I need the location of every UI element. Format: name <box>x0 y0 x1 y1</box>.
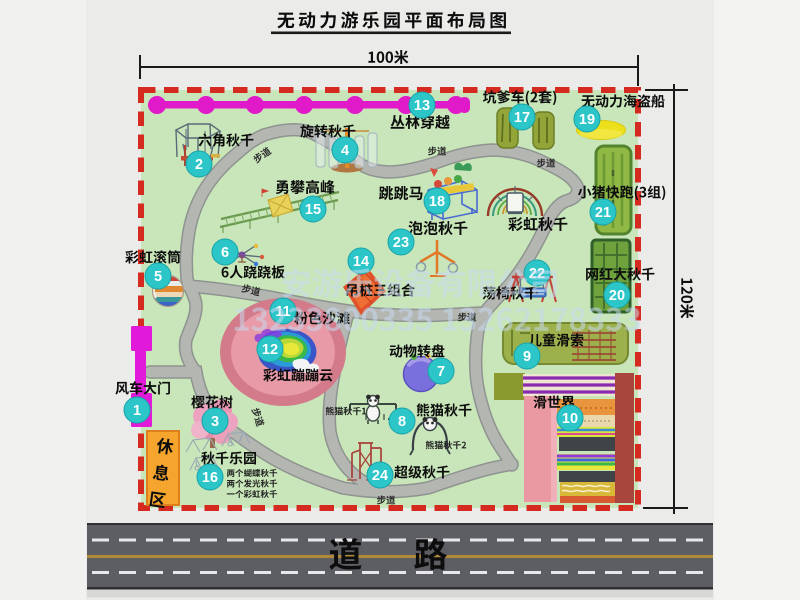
svg-text:22: 22 <box>529 266 545 282</box>
svg-text:10: 10 <box>562 411 578 427</box>
svg-text:16: 16 <box>202 470 218 486</box>
svg-text:21: 21 <box>595 205 611 221</box>
svg-text:19: 19 <box>579 112 595 128</box>
svg-text:8: 8 <box>398 414 406 430</box>
svg-text:14: 14 <box>353 254 369 270</box>
svg-text:3: 3 <box>211 414 219 430</box>
svg-text:1: 1 <box>133 403 141 419</box>
svg-text:2: 2 <box>195 157 203 173</box>
svg-text:4: 4 <box>341 143 349 159</box>
svg-text:5: 5 <box>154 269 162 285</box>
svg-text:13: 13 <box>414 98 430 114</box>
svg-text:6: 6 <box>221 245 229 261</box>
svg-text:23: 23 <box>393 235 409 251</box>
svg-text:18: 18 <box>429 194 445 210</box>
svg-text:17: 17 <box>514 110 530 126</box>
svg-text:15: 15 <box>305 202 321 218</box>
svg-text:9: 9 <box>523 349 531 365</box>
svg-text:12: 12 <box>262 342 278 358</box>
svg-text:24: 24 <box>372 468 388 484</box>
svg-text:20: 20 <box>609 288 625 304</box>
svg-text:7: 7 <box>437 364 445 380</box>
